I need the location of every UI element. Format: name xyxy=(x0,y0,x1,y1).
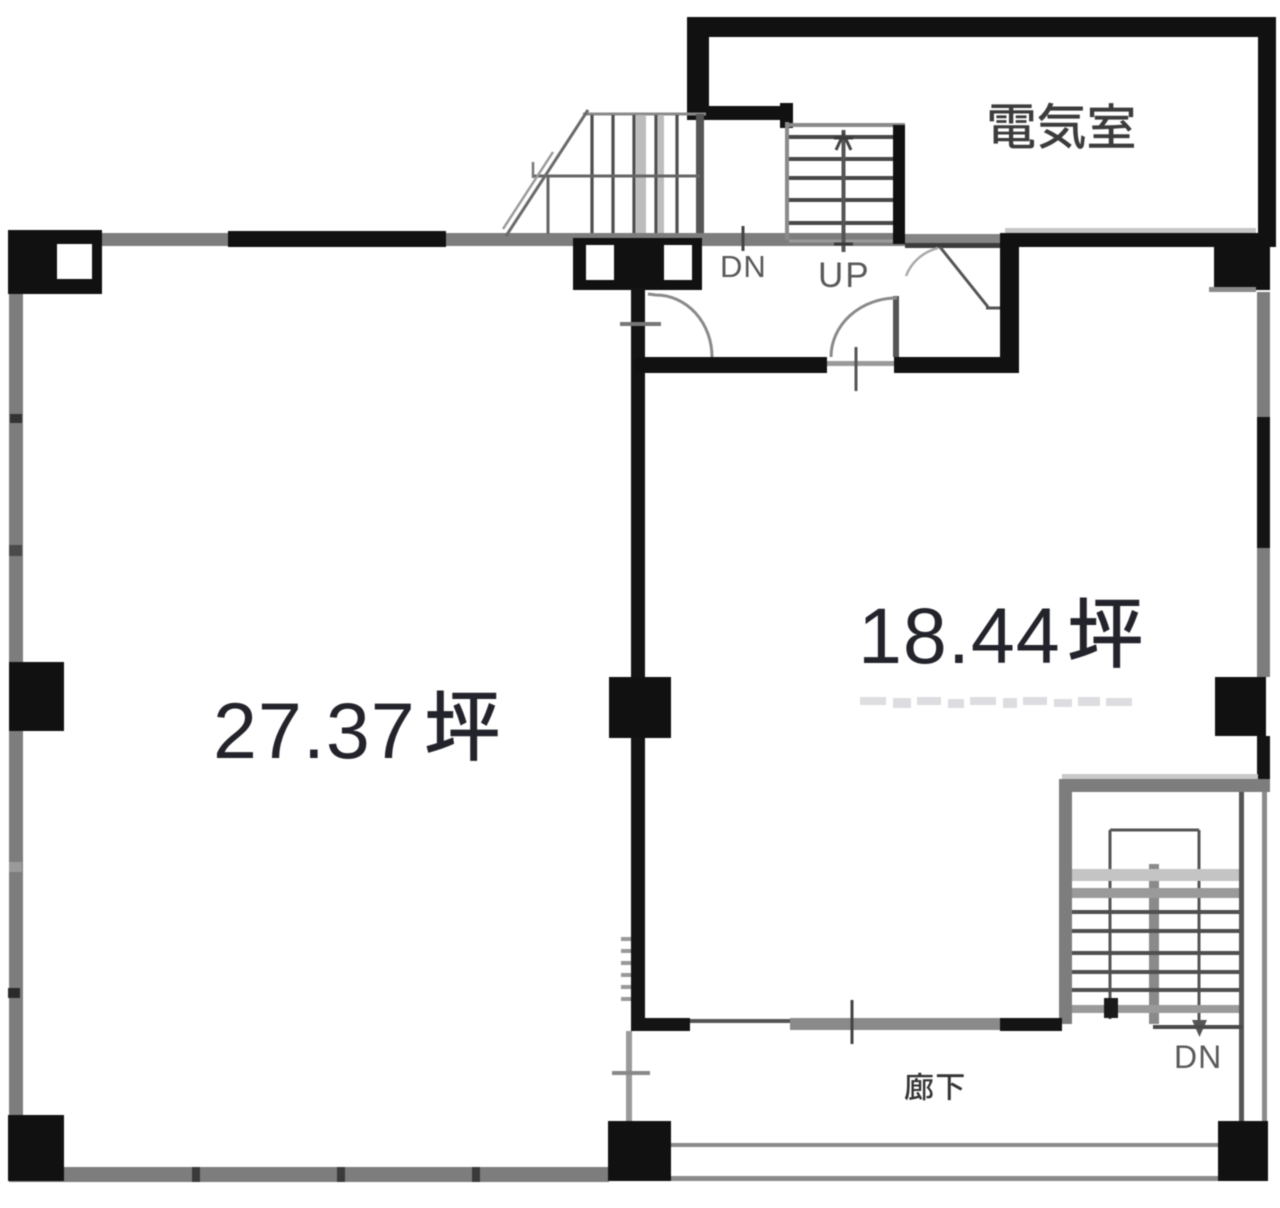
svg-text:27.37: 27.37 xyxy=(213,686,416,775)
svg-text:DN: DN xyxy=(720,249,767,284)
svg-text:18.44: 18.44 xyxy=(858,591,1061,680)
svg-text:DN: DN xyxy=(1174,1039,1222,1075)
svg-text:UP: UP xyxy=(818,256,871,295)
